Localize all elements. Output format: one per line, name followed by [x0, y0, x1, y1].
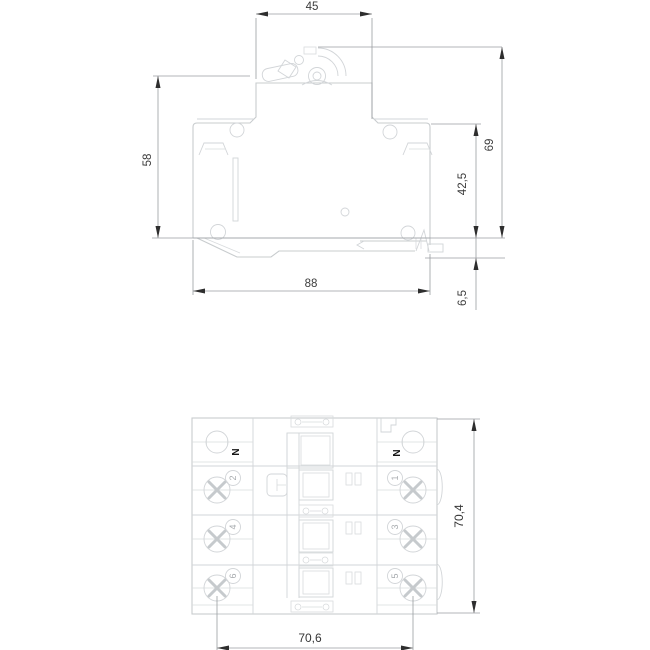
dimension-left-height: 58 [142, 76, 250, 238]
side-slot [233, 158, 238, 221]
neutral-label-right: N [392, 449, 403, 456]
device-body-outline [193, 83, 430, 245]
din-clip-release-tab [267, 474, 287, 496]
neutral-terminal-left: N [206, 431, 242, 456]
pole-number: 5 [390, 573, 400, 578]
toggle-lever [261, 47, 346, 85]
dim-69-label: 69 [484, 139, 496, 152]
technical-drawing-canvas: 45 58 69 42,5 [0, 0, 650, 650]
dimension-top-width: 45 [256, 1, 372, 119]
pole-number: 6 [228, 573, 238, 578]
dim-42-5-label: 42,5 [457, 173, 469, 195]
rivet-row [291, 601, 333, 612]
rivet-row [299, 553, 333, 566]
dimension-body-height: 42,5 [457, 124, 479, 238]
pole-number: 3 [390, 524, 400, 529]
dim-58-label: 58 [142, 154, 154, 167]
neutral-label-left: N [231, 448, 242, 455]
top-view-side-profile: 45 58 69 42,5 [142, 1, 505, 310]
dimension-total-height: 69 [484, 47, 505, 238]
screw-bosses [211, 123, 416, 240]
top-right-notch [381, 418, 396, 432]
clamp-bump-upper [437, 469, 442, 505]
dimensional-drawing: 45 58 69 42,5 [0, 0, 650, 650]
dim-6-5-label: 6,5 [457, 290, 469, 306]
dim-88-label: 88 [305, 278, 318, 290]
dimension-terminal-spacing: 70,6 [217, 596, 413, 650]
pole-number: 4 [228, 524, 238, 529]
pole-number: 2 [228, 475, 238, 480]
pole-number: 1 [390, 475, 400, 480]
terminal-clamp-left [199, 143, 228, 155]
bottom-view-terminal-face: N N [192, 416, 480, 650]
window-marks [346, 473, 361, 584]
pole-numbers-left: 2 4 6 [226, 471, 241, 584]
dimension-module-height: 70,4 [437, 419, 480, 613]
neutral-terminal-right: N [392, 431, 424, 457]
dim-45-label: 45 [306, 1, 319, 13]
terminal-clamp-right [403, 143, 432, 155]
dim-70-6-label: 70,6 [298, 631, 322, 645]
terminal-strip-lines [192, 442, 437, 605]
dimension-din-depth: 6,5 [457, 238, 479, 310]
dim-70-4-label: 70,4 [452, 504, 466, 528]
din-channel-column [267, 416, 361, 612]
clamp-bump-lower [437, 564, 442, 600]
